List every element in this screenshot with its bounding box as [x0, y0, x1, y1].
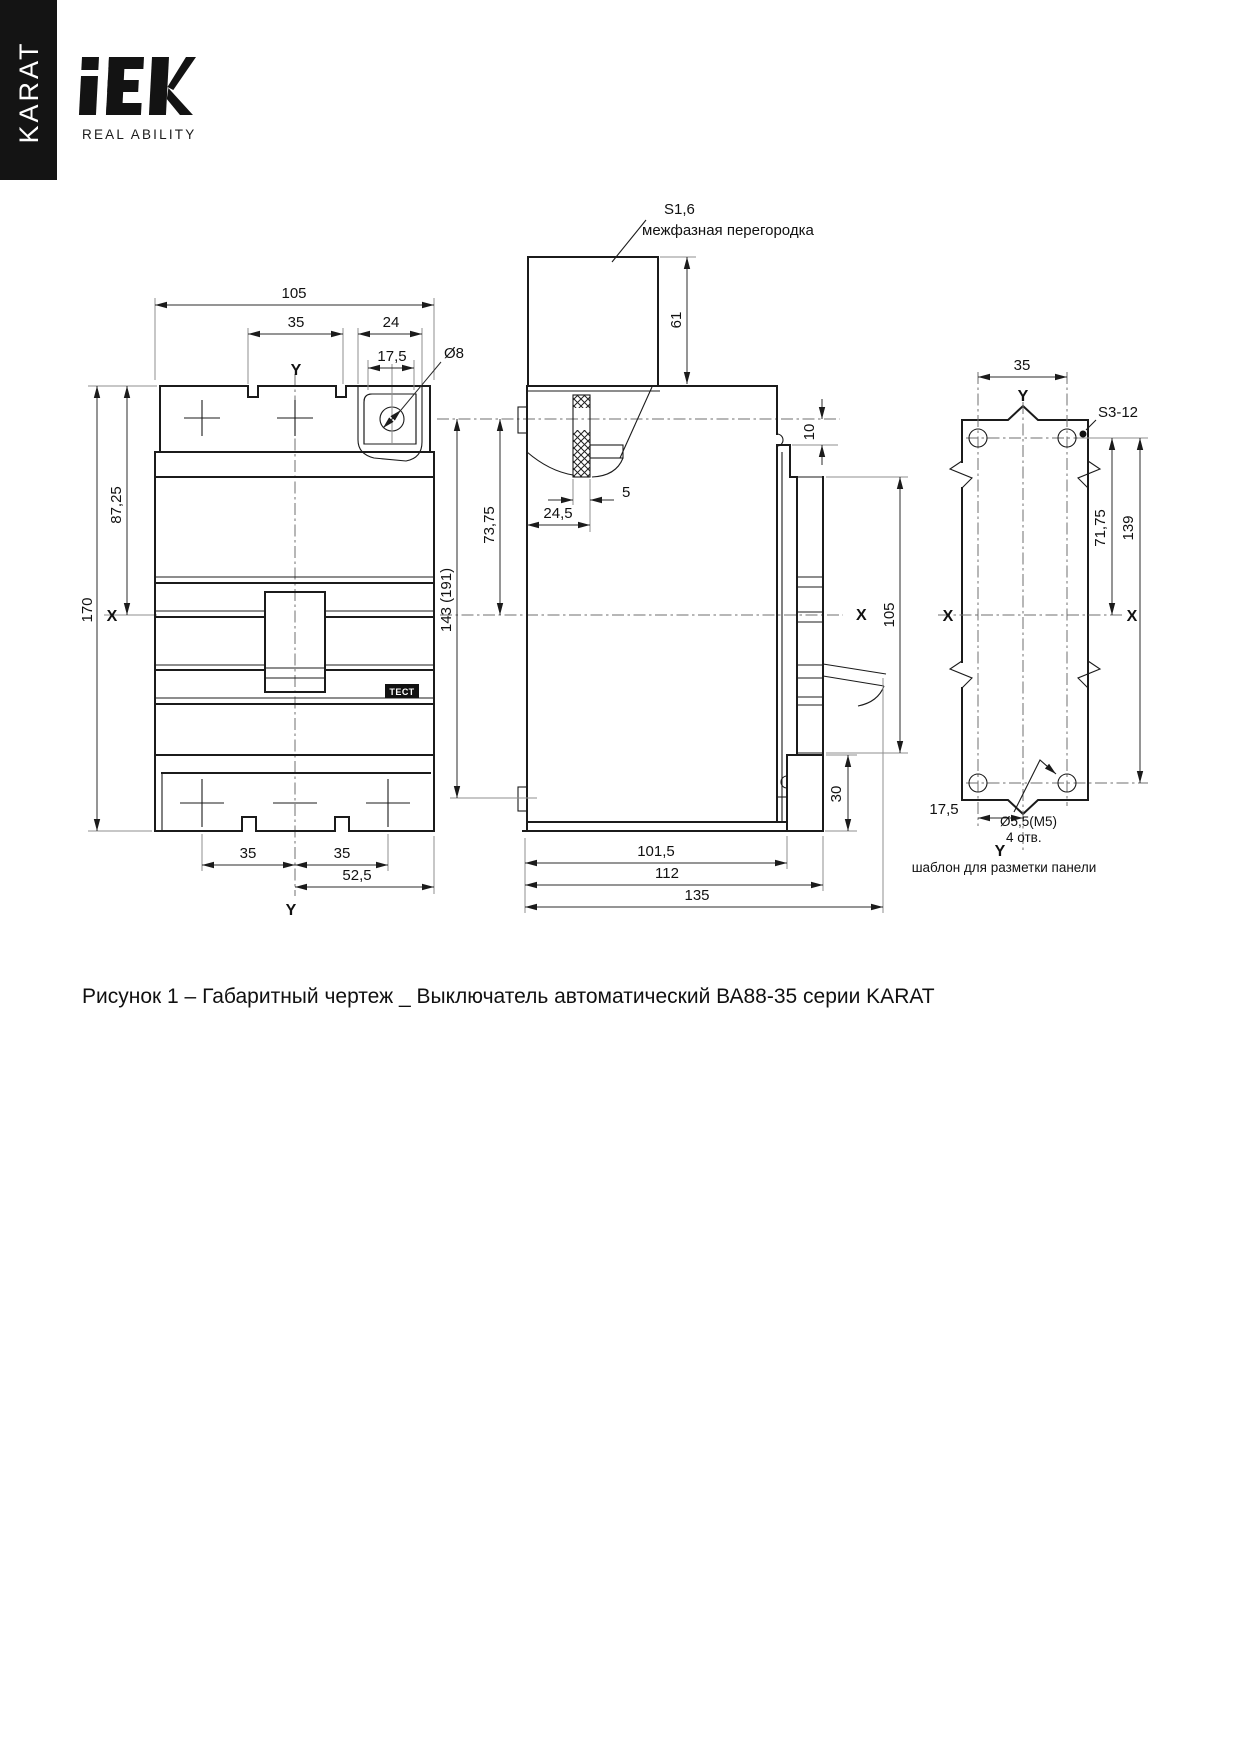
test-button-label: ТЕСТ	[389, 687, 414, 697]
dimensional-drawing: KARAT REAL ABILITY	[0, 0, 1242, 1751]
dim-pad-width: 24	[383, 314, 400, 331]
dim-front-to-axis: 73,75	[481, 506, 498, 544]
dim-overall-width: 105	[281, 285, 306, 302]
test-button: ТЕСТ	[385, 684, 419, 698]
dim-axis-to-holes: 71,75	[1092, 509, 1109, 547]
dim-hole-offset: 17,5	[377, 348, 406, 365]
dim-panel-height: 105	[881, 602, 898, 627]
template-y-top-label: Y	[1018, 388, 1029, 405]
interphase-barrier	[528, 257, 658, 386]
front-y-axis-bottom-label: Y	[286, 902, 297, 919]
mounting-foot	[777, 753, 823, 831]
barrier-section	[590, 445, 623, 458]
template-y-bottom-label: Y	[995, 843, 1006, 860]
dim-hole-pitch-x: 35	[1014, 357, 1031, 374]
drawing-page: KARAT REAL ABILITY	[0, 0, 1242, 1751]
dim-hole-pitch-y: 139	[1120, 515, 1137, 540]
header: KARAT REAL ABILITY	[0, 0, 196, 180]
iek-logo-icon	[79, 57, 196, 115]
front-x-axis-label: X	[107, 608, 118, 625]
brand-tagline: REAL ABILITY	[82, 127, 196, 142]
hatched-terminal-pad	[358, 386, 422, 461]
side-dimensions: 61 143 (191) 73,75 24,5 5 10 X 105 30	[438, 257, 908, 913]
barrier-name-label: межфазная перегородка	[642, 222, 814, 239]
side-x-axis-label: X	[856, 607, 867, 624]
figure-caption: Рисунок 1 – Габаритный чертеж _ Выключат…	[82, 985, 935, 1008]
dim-overall-depth: 135	[684, 887, 709, 904]
template-x-right-label: X	[1127, 608, 1138, 625]
dim-hole-dia: Ø8	[444, 345, 464, 362]
hole-count-label: 4 отв.	[1006, 830, 1042, 845]
side-view: S1,6 межфазная перегородка	[437, 201, 908, 913]
dim-pole-pitch: 35	[288, 314, 305, 331]
front-dimensions: 105 35 24 17,5 Ø8 170 87,25 X Y 35	[79, 285, 464, 919]
dim-body-depth: 112	[655, 865, 679, 882]
dim-half-pitch: 17,5	[929, 801, 958, 818]
dim-barrier-thk: 5	[622, 484, 630, 501]
dim-step: 10	[801, 424, 818, 441]
dim-axes-span: 143 (191)	[438, 568, 455, 632]
template-x-left-label: X	[943, 608, 954, 625]
dim-base: 101,5	[637, 843, 675, 860]
dim-axis-to-edge: 52,5	[342, 867, 371, 884]
dim-foot-height: 30	[828, 786, 845, 803]
template-dimensions: 35 Y S3-12 71,75 139 X X 17,5 Ø5,5(M5) 4…	[912, 357, 1148, 875]
panel-template-view: 35 Y S3-12 71,75 139 X X 17,5 Ø5,5(M5) 4…	[912, 357, 1148, 875]
template-plate	[962, 406, 1088, 814]
dim-overall-height: 170	[79, 597, 96, 622]
dim-barrier-height: 61	[668, 312, 685, 329]
barrier-thickness-label: S1,6	[664, 201, 695, 218]
dim-top-to-axis: 87,25	[108, 486, 125, 524]
panel-thickness-label: S3-12	[1098, 404, 1138, 421]
dim-pitch-right: 35	[334, 845, 351, 862]
front-view: ТЕСТ 105 35 24 17,5 Ø8	[79, 285, 464, 919]
series-sidebar-label: KARAT	[14, 40, 44, 143]
dim-pitch-left: 35	[240, 845, 257, 862]
dim-barrier-pos: 24,5	[543, 505, 572, 522]
front-y-axis-top-label: Y	[291, 362, 302, 379]
template-note: шаблон для разметки панели	[912, 860, 1097, 875]
panel-thickness-dot	[1080, 431, 1087, 438]
hole-spec-label: Ø5,5(M5)	[1000, 814, 1057, 829]
